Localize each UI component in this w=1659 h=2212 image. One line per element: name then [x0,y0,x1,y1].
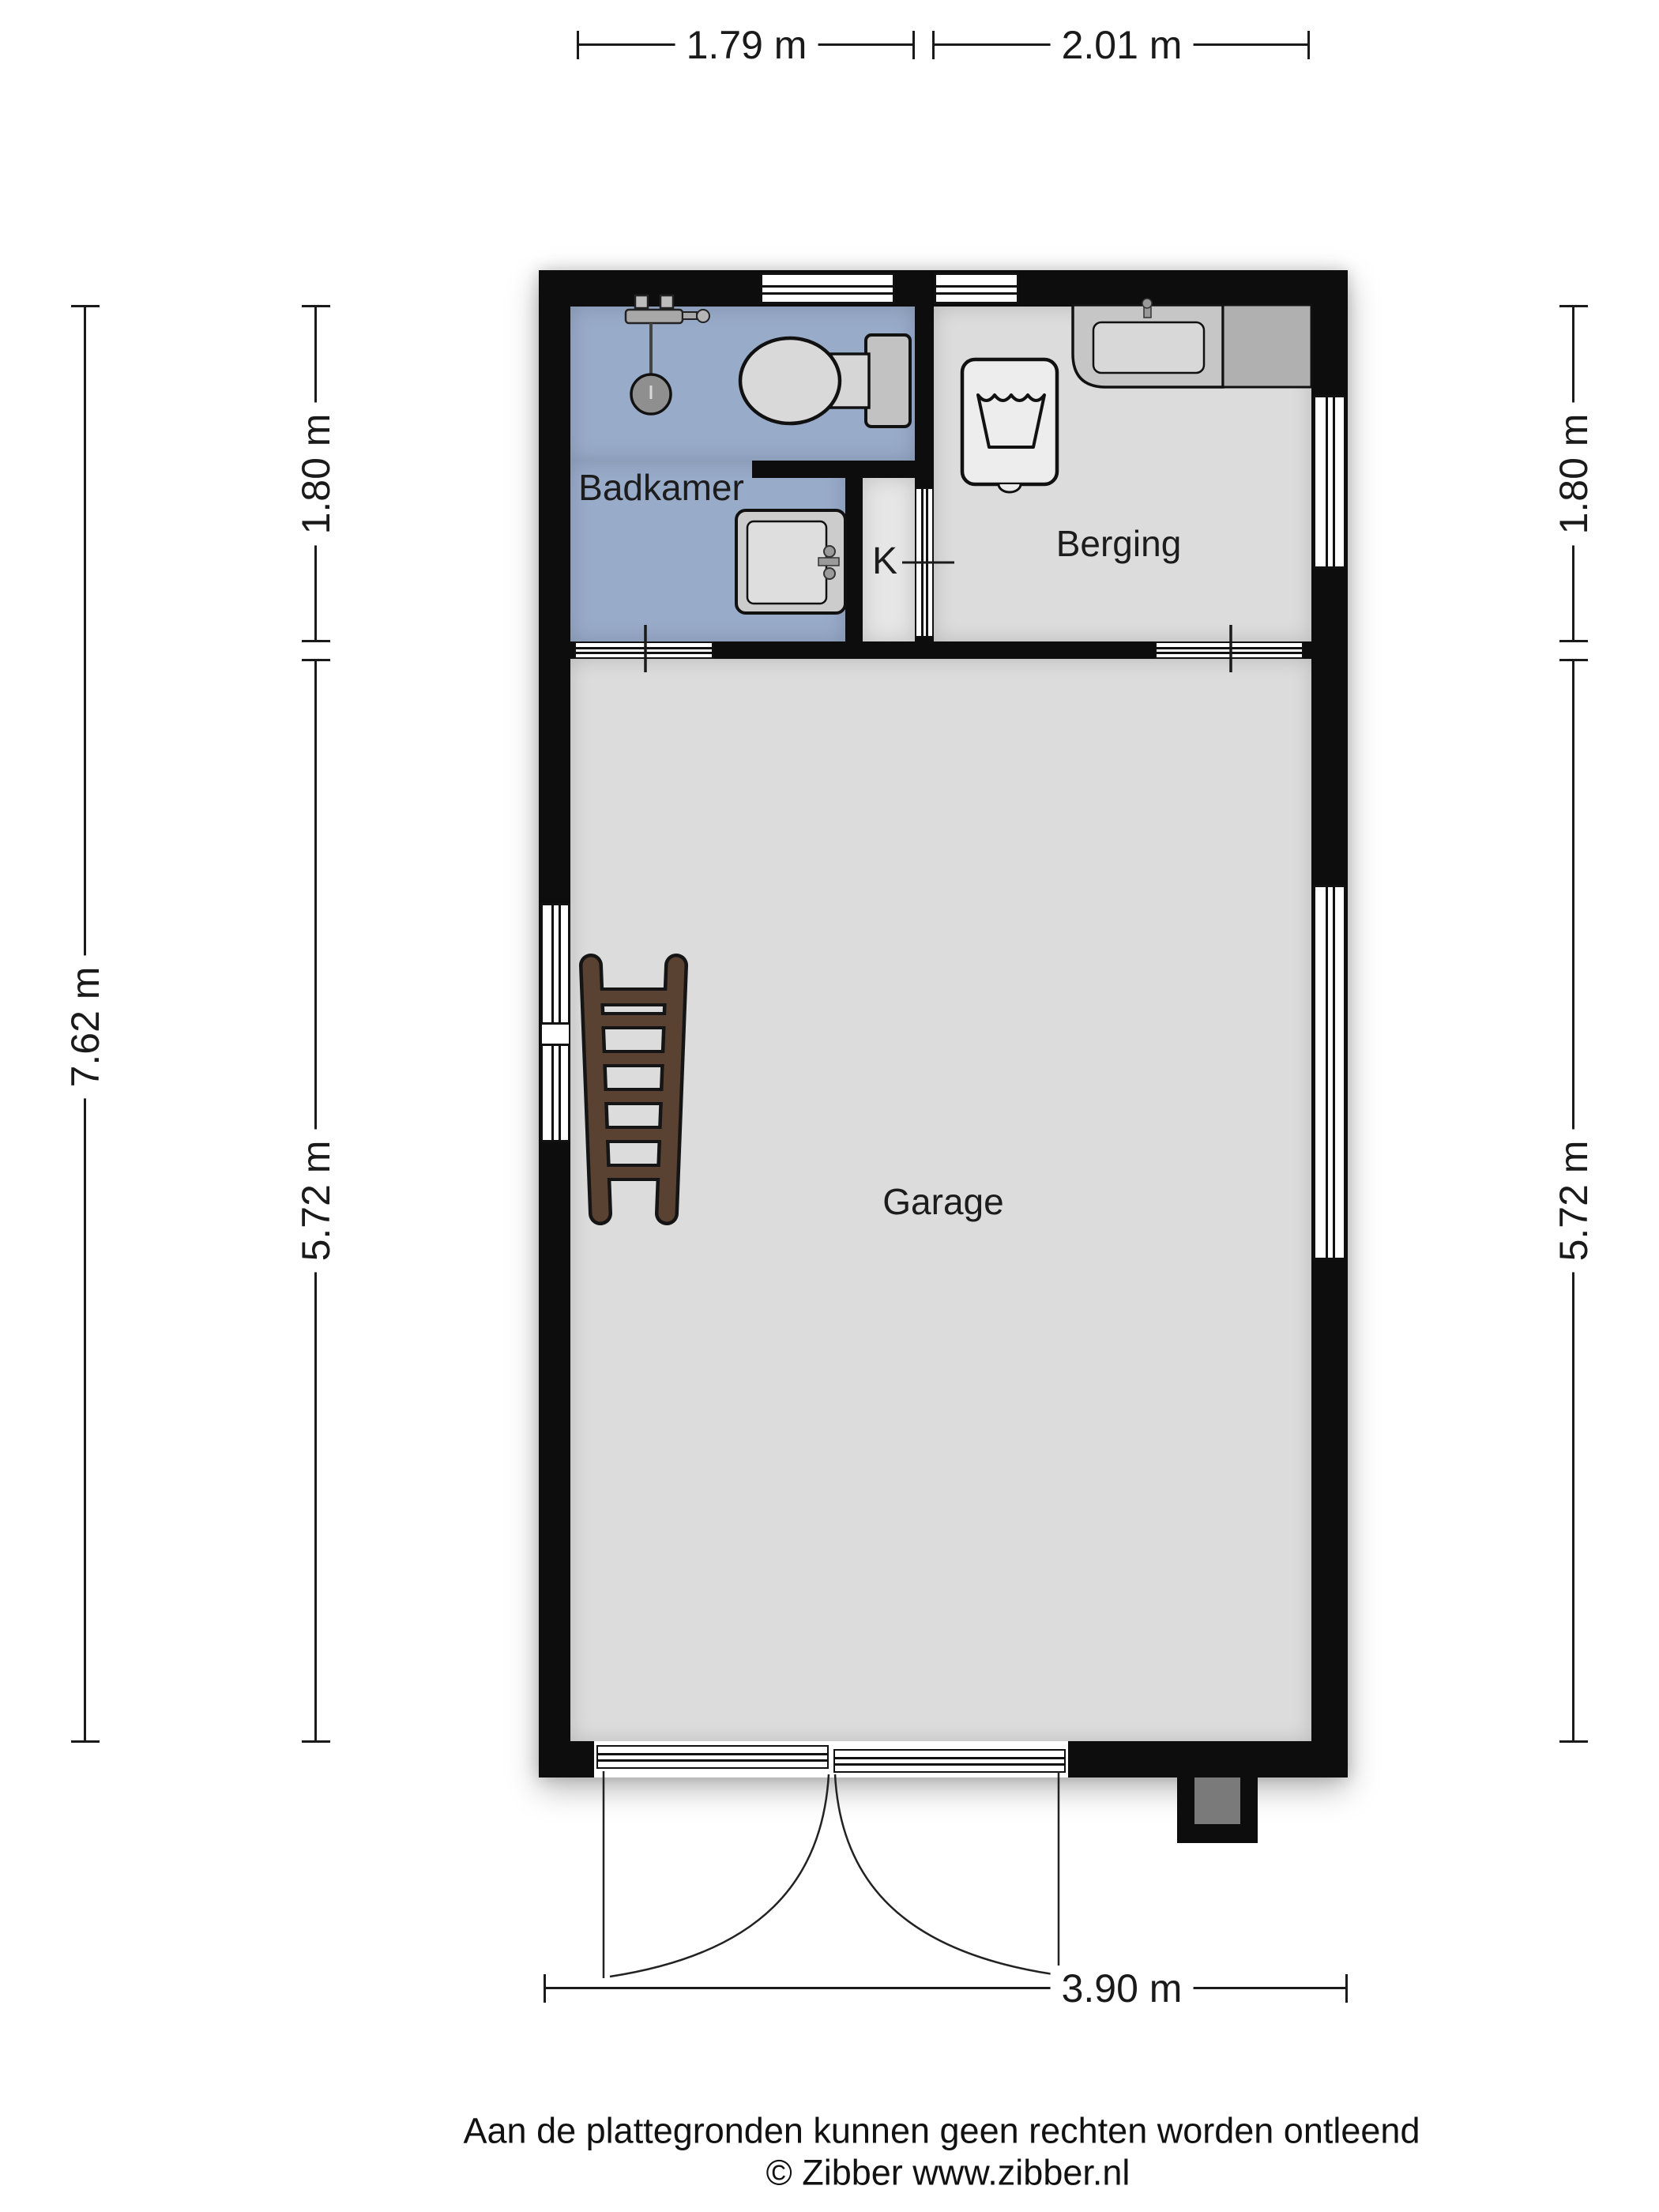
room-label-berging: Berging [1056,525,1182,562]
door-closet-sliding [915,487,934,638]
floor-berging [934,307,1311,641]
room-label-garage: Garage [882,1183,1003,1220]
dim-tick [302,1740,330,1743]
window-sash-divider [542,1022,569,1046]
window-garage-right [1313,885,1346,1260]
window-berging-top [934,273,1019,304]
dim-label-right-2: 5.72 m [1551,1130,1597,1273]
chimney-core [1194,1777,1240,1824]
floor-badkamer-upper [570,307,915,461]
dim-tick [1345,1974,1348,2003]
dim-tick [71,305,100,307]
door-berging [1155,641,1303,659]
wall-closet-column-top [915,307,934,487]
dim-tick [1559,659,1588,661]
dim-label-top-2: 2.01 m [1051,22,1194,68]
footer-credit: © Zibber www.zibber.nl [766,2155,1130,2191]
window-berging-right [1313,395,1346,569]
dim-tick [1559,640,1588,642]
dim-label-left-overall: 7.62 m [62,956,108,1099]
garage-door-leaf-left [596,1745,829,1769]
room-label-kast: K [872,543,897,581]
dim-tick [544,1974,546,2003]
dim-tick [1307,31,1310,59]
dim-tick [302,305,330,307]
dim-label-left-2: 5.72 m [293,1130,339,1273]
dim-label-top-1: 1.79 m [675,22,818,68]
garage-door-swing [604,1771,1059,1978]
dim-tick [1559,305,1588,307]
dim-tick [577,31,579,59]
dim-label-left-1: 1.80 m [293,403,339,546]
dim-tick [302,659,330,661]
dim-tick [932,31,935,59]
dim-tick [1559,1740,1588,1743]
dim-line-bottom [545,1987,1348,1989]
wall-stub-badkamer [752,461,915,478]
footer-disclaimer: Aan de plattegronden kunnen geen rechten… [464,2113,1420,2149]
dim-label-right-1: 1.80 m [1551,403,1597,546]
dim-tick [302,640,330,642]
floor-plan-page: Badkamer K Berging Garage 1.79 m 2.01 m … [0,0,1659,2212]
dim-tick [71,1740,100,1743]
wall-closet-column-bottom [915,638,934,659]
dim-tick [912,31,915,59]
room-label-badkamer: Badkamer [578,469,744,506]
door-badkamer [574,641,713,659]
garage-door-leaf-right [833,1749,1066,1773]
dim-label-bottom: 3.90 m [1051,1966,1194,2011]
window-badkamer-top [760,273,895,304]
window-garage-left [540,903,570,1142]
wall-badkamer-closet [845,478,863,641]
